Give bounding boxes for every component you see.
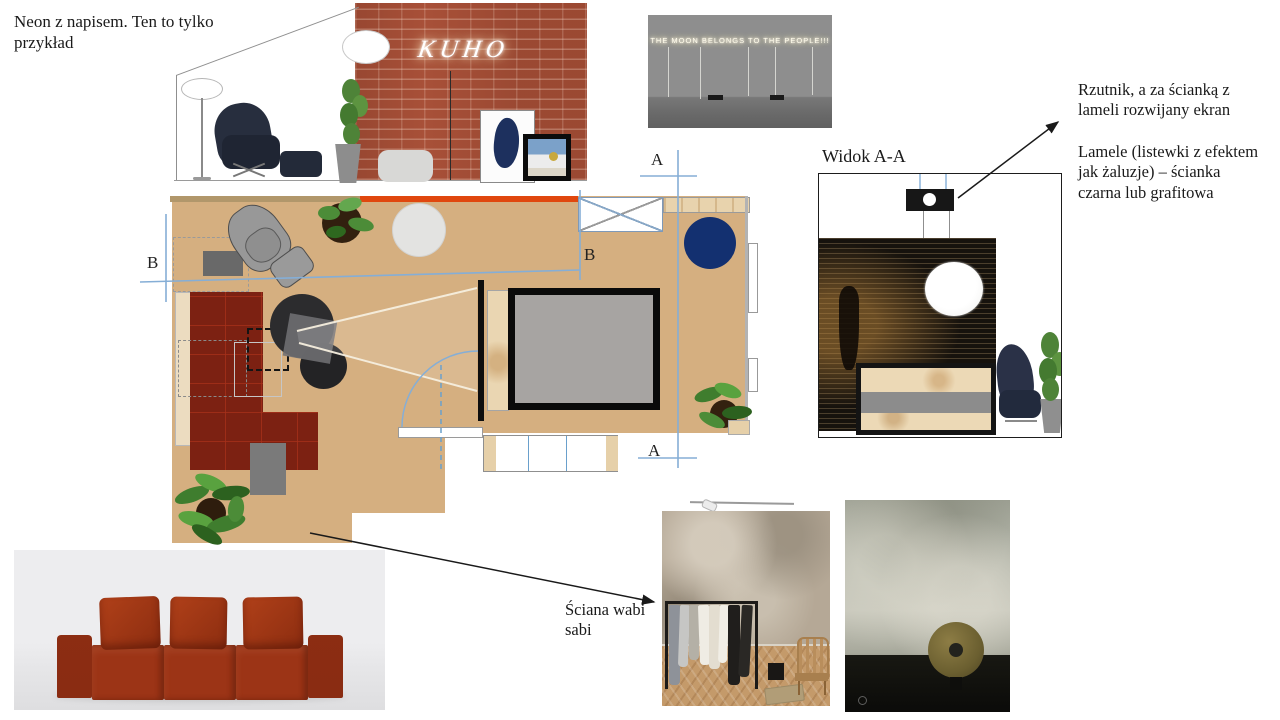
ottoman [280,151,322,177]
note-lamele: Lamele (listewki z efektem jak żaluzje) … [1078,142,1264,203]
room-visual-brick-neon: KUHO [170,3,587,183]
closet-wood-side [484,436,496,471]
plan-side-table [203,251,243,276]
projector-lens [923,193,936,206]
picture-detail [549,152,558,161]
wicker-chair-leg [824,681,826,695]
suspension-line [945,174,947,190]
pendant-lamp [342,30,390,64]
projector [906,189,954,211]
section-marker-b-left: B [147,253,158,273]
plan-coffee-table [250,443,286,495]
office-chair-seat [999,390,1041,418]
sofa-seat [92,645,164,700]
plan-partition-wall [478,280,484,421]
floor-plan [170,196,770,548]
left-wall-line [176,75,177,181]
floor-lamp-shade [181,78,223,100]
closet-wood-side [606,436,618,471]
pendant-lamp [925,262,983,316]
black-cube [768,663,784,680]
plan-radiator [748,358,758,392]
neon-cable [450,71,451,180]
floor-lamp-pole [201,98,203,179]
view-aa-label: Widok A-A [822,146,906,167]
moon-neon-photo: THE MOON BELONGS TO THE PEOPLE!!! [648,15,832,128]
wabi-sabi-label: Ściana wabi sabi [565,600,661,641]
plan-wardrobe [578,197,663,232]
plan-radiator [748,243,758,313]
clothing-rack-leg [755,601,758,689]
closet-divider [528,436,529,471]
plan-bed [508,288,660,410]
sofa-reference-photo [14,550,385,710]
note-projector: Rzutnik, a za ścianką z lameli rozwijany… [1078,80,1250,121]
plant-pot [1038,399,1062,433]
sofa-arm [308,635,343,698]
lounge-chair-seat [222,135,280,169]
sofa-cushion [99,596,161,650]
clothing-rack-leg [665,601,668,689]
plan-projector-table [283,313,338,364]
sofa-arm [57,635,92,698]
plan-door-wall [398,427,483,438]
neon-transformer [770,95,784,100]
plan-window-sill [663,197,750,213]
wicker-chair-seat [795,673,828,681]
neon-cable [700,47,701,99]
sofa-cushion [243,596,304,649]
neon-sign-kuho: KUHO [416,36,530,64]
neon-cable [748,47,749,96]
clothing-rack-bar [665,601,758,604]
floor-lamp-base [193,177,211,180]
plan-right-wall [745,196,748,433]
sideboard-band [861,392,991,413]
neon-cable [812,47,813,95]
ceiling-slant-line [176,7,359,76]
wabi-texture-photo [845,500,1010,712]
bench-pouf [378,150,433,182]
plan-navy-rug [684,217,736,269]
section-marker-a-bottom: A [648,441,660,461]
suspension-line [919,174,921,190]
framed-picture [523,134,571,181]
vase-silhouette [839,286,859,370]
plan-headboard [487,290,509,411]
office-chair-base [1005,420,1037,422]
plan-accent-wall [360,196,578,202]
sofa-seat [236,645,308,700]
closet-divider [566,436,567,471]
watermark-logo [858,696,867,705]
plan-window-sill [728,420,750,435]
dark-floor-band [845,655,1010,712]
sofa-cushion [170,597,228,650]
poster-shape [491,117,522,170]
neon-sign-moon: THE MOON BELONGS TO THE PEOPLE!!! [648,36,832,45]
stone-hole [949,643,963,657]
floor-area-entry [352,433,445,513]
view-aa-drawing [818,173,1062,438]
neon-cable [668,47,669,97]
sideboard-desk [856,363,996,435]
plan-round-rug [393,204,445,256]
moodboard-slide: Neon z napisem. Ten to tylko przykład KU… [0,0,1280,720]
plan-top-wall [170,196,360,202]
neon-transformer [708,95,723,100]
section-marker-b-right: B [584,245,595,265]
wicker-chair-leg [798,681,800,695]
plan-closet [483,435,618,472]
neon-cable [775,47,776,99]
sofa-seat [164,645,236,700]
section-marker-a-top: A [651,150,663,170]
stone-stand [950,677,962,690]
wabi-wall-rack-photo [662,498,830,706]
